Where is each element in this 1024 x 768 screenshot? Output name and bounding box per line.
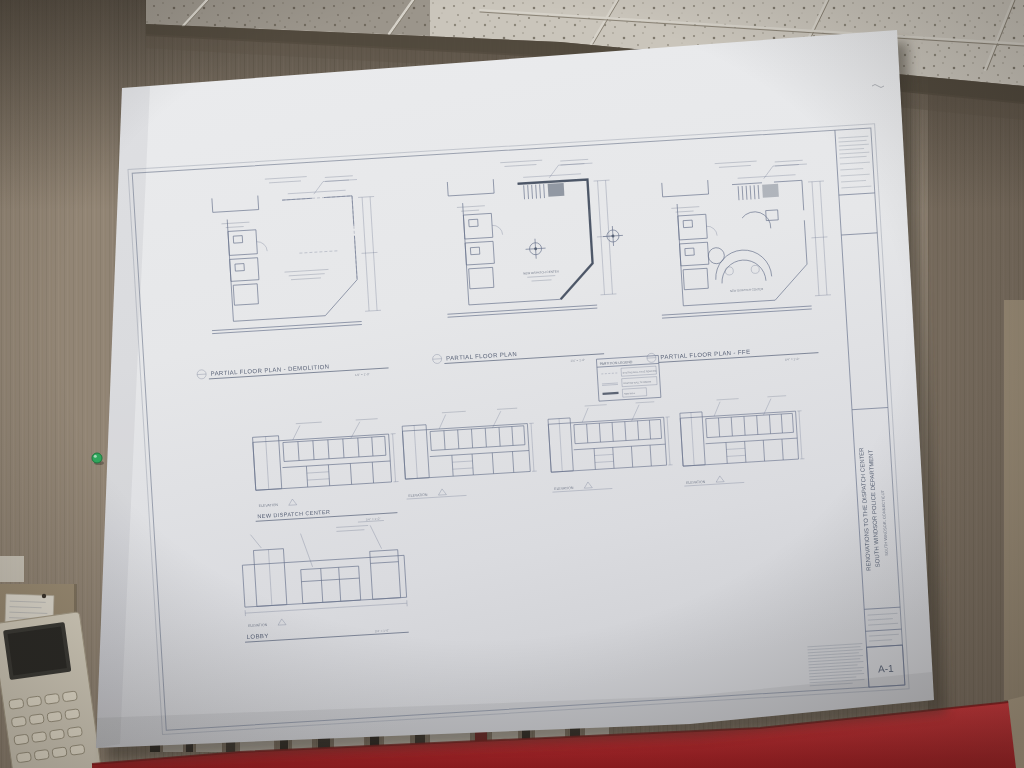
photo-vignette bbox=[0, 0, 1024, 768]
photo-canvas: PARTIAL FLOOR PLAN - DEMOLITION 1/4" = 1… bbox=[0, 0, 1024, 768]
photo-scene: PARTIAL FLOOR PLAN - DEMOLITION 1/4" = 1… bbox=[0, 0, 1024, 768]
